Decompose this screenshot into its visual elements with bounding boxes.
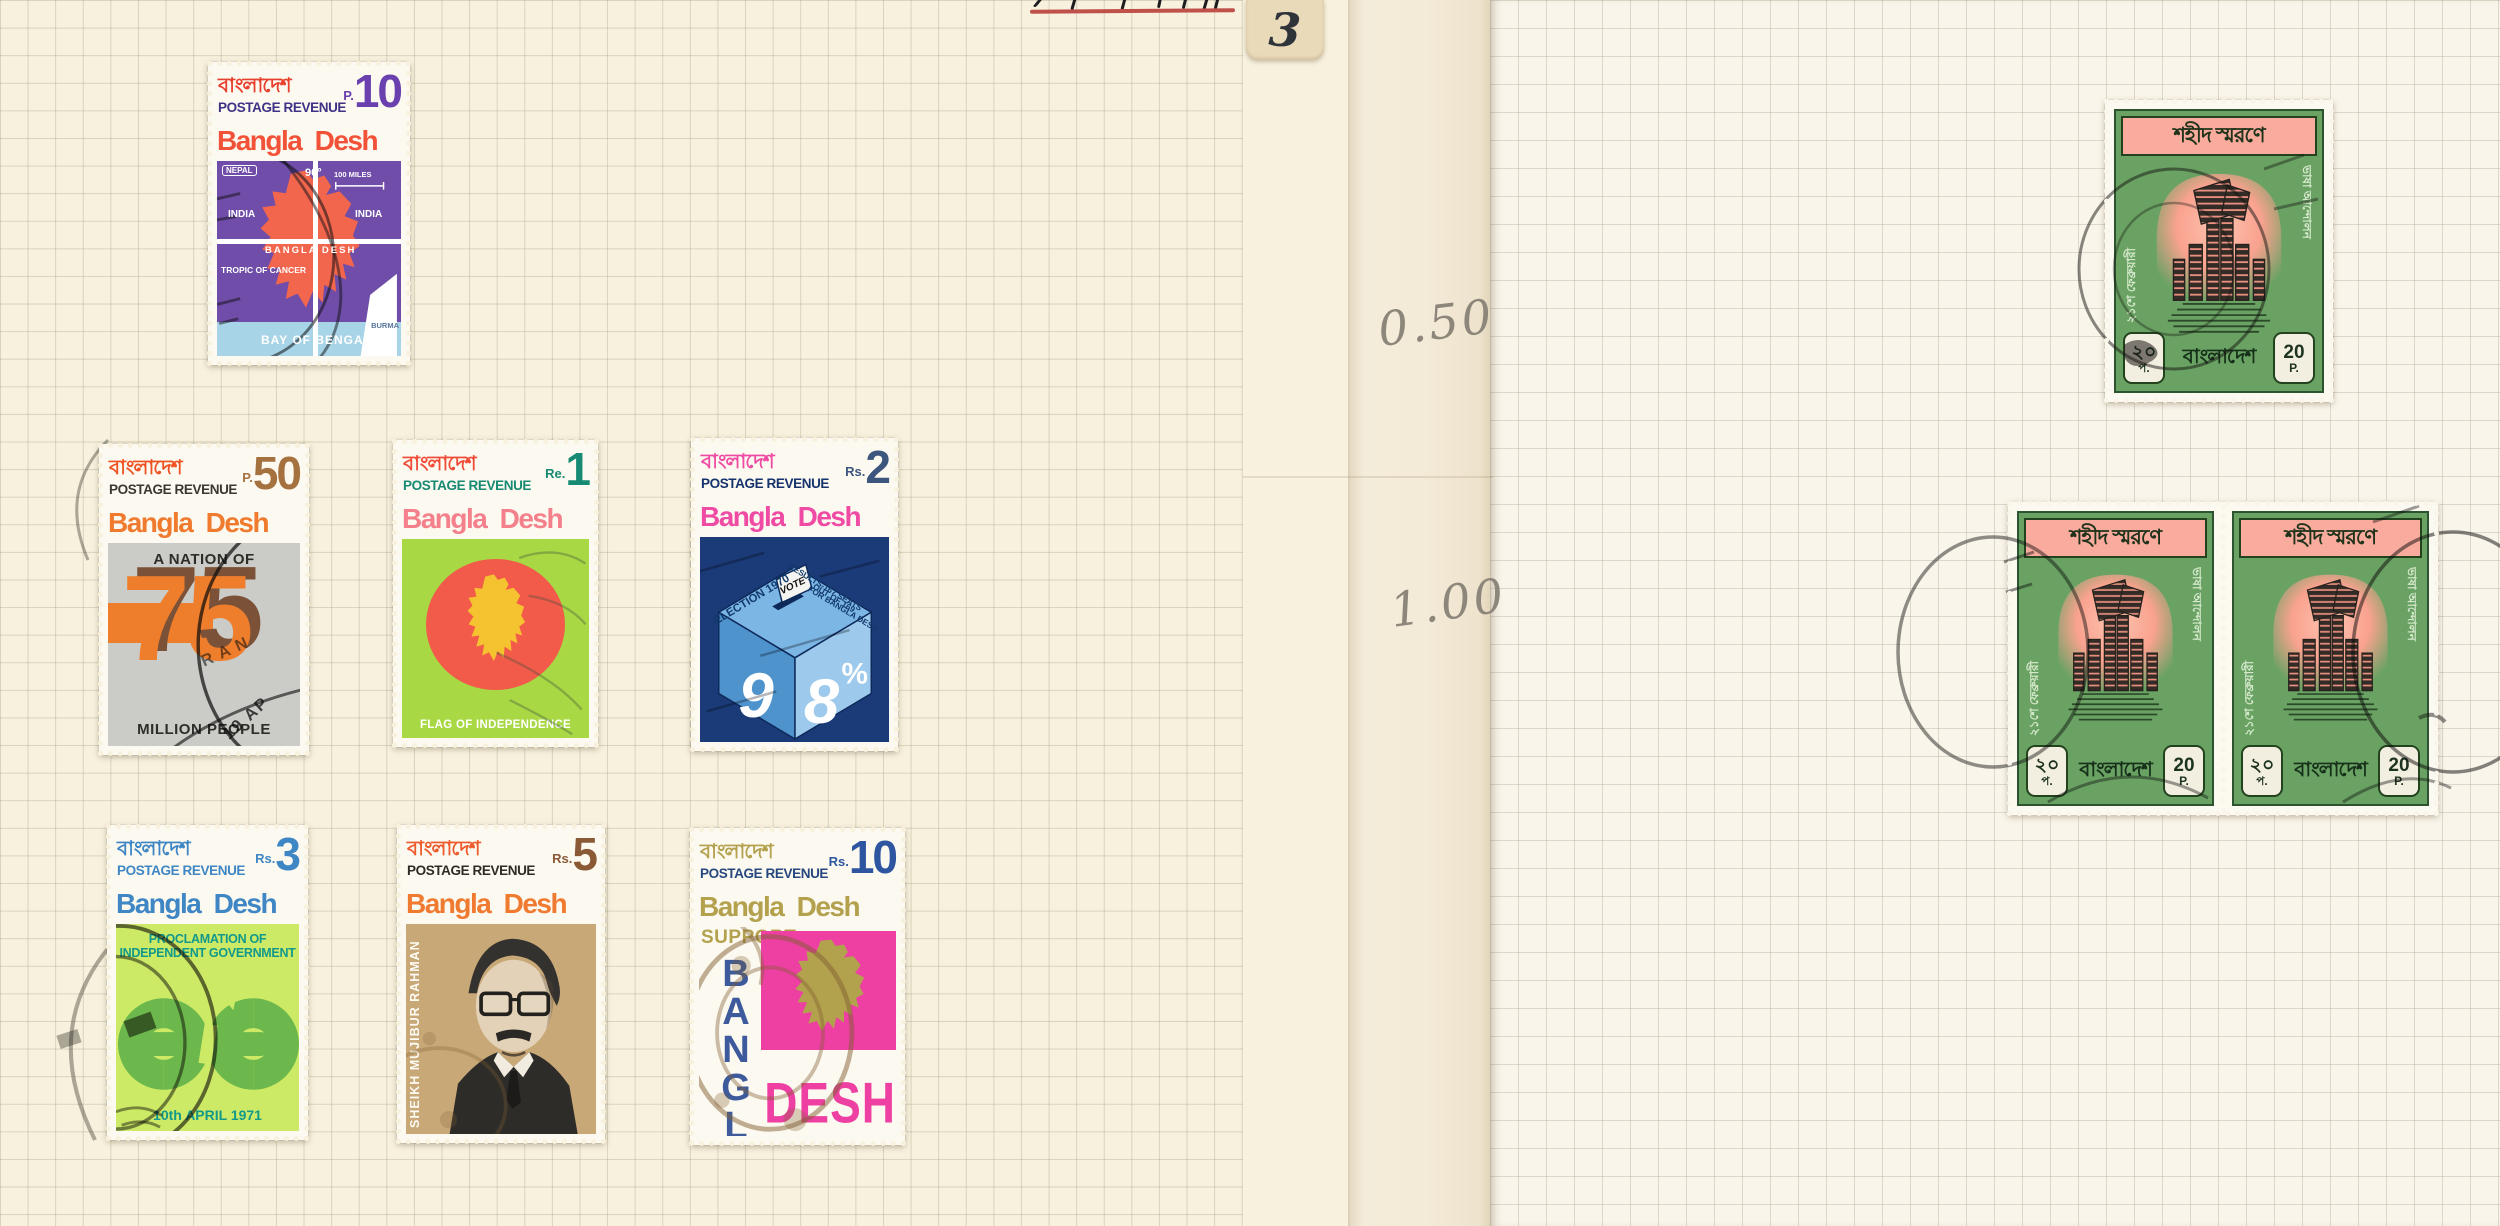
series-title: POSTAGE REVENUE bbox=[218, 100, 346, 115]
denom-prefix: Rs. bbox=[829, 854, 849, 869]
denom-value: 10 bbox=[849, 839, 896, 876]
denomination: Rs. 5 bbox=[552, 836, 596, 873]
denom-value: 5 bbox=[572, 836, 596, 873]
series-title: POSTAGE REVENUE bbox=[407, 863, 535, 878]
desh-text: DESH bbox=[764, 1069, 896, 1137]
stamp-head: বাংলাদেশ POSTAGE REVENUE Re. 1 Bangla De… bbox=[402, 449, 589, 535]
bangla-vertical-text: BANGLA bbox=[699, 953, 755, 1136]
country-name: Bangla Desh bbox=[402, 503, 562, 535]
digit-eight: 8 bbox=[804, 667, 840, 737]
stamp-10rs-support: বাংলাদেশ POSTAGE REVENUE Rs. 10 Bangla D… bbox=[690, 828, 905, 1145]
stamp-50p-nation: বাংলাদেশ POSTAGE REVENUE P. 50 Bangla De… bbox=[99, 444, 309, 755]
meridian-line bbox=[313, 161, 318, 356]
header-band: শহীদ স্মরণে bbox=[2239, 518, 2422, 558]
stamp-head: বাংলাদেশ POSTAGE REVENUE Rs. 10 Bangla D… bbox=[699, 837, 896, 923]
cut-off-ink-note bbox=[1028, 0, 1243, 18]
broken-chain-graphic bbox=[116, 970, 299, 1120]
chain-panel: PROCLAMATION OF INDEPENDENT GOVERNMENT bbox=[116, 924, 299, 1131]
denom-prefix: P. bbox=[242, 470, 253, 485]
country-name: Bangla Desh bbox=[406, 888, 566, 920]
map-panel: NEPAL 90° 100 MILES INDIA INDIA BANGLA D… bbox=[217, 161, 401, 356]
pair-left-stamp: শহীদ স্মরণে ২১শে ফেব্রুয়ারী ভাষা আন্দোল… bbox=[2008, 502, 2223, 815]
label-tropic: TROPIC OF CANCER bbox=[221, 265, 306, 275]
support-panel: SUPPORT BANGLA DESH bbox=[699, 927, 896, 1136]
side-text-right: ভাষা আন্দোলন bbox=[2297, 165, 2317, 323]
stamp-face-mount: শহীদ স্মরণে ২১শে ফেব্রুয়ারী ভাষা আন্দোল… bbox=[2114, 109, 2324, 393]
ink-stroke bbox=[1033, 0, 1042, 8]
stamp-5rs-mujib: বাংলাদেশ POSTAGE REVENUE Rs. 5 Bangla De… bbox=[397, 825, 605, 1143]
denomination: P. 10 bbox=[343, 73, 401, 110]
pink-block bbox=[761, 931, 896, 1050]
shaheed-minar-stamp-face: শহীদ স্মরণে ২১শে ফেব্রুয়ারী ভাষা আন্দোল… bbox=[2232, 511, 2429, 806]
album-scan: 3 0.50 1.00 বাংলাদেশ POSTAGE REVENUE P. … bbox=[0, 0, 2500, 1226]
bangladesh-map-graphic bbox=[764, 930, 894, 1051]
label-burma: BURMA bbox=[371, 321, 399, 330]
mujib-portrait-graphic bbox=[429, 924, 596, 1134]
denomination: Rs. 10 bbox=[829, 839, 896, 876]
denom-value: 10 bbox=[354, 73, 401, 110]
header-band: শহীদ স্মরণে bbox=[2024, 518, 2207, 558]
denom-prefix: Rs. bbox=[845, 464, 865, 479]
side-text-right: ভাষা আন্দোলন bbox=[2187, 567, 2207, 736]
stamp-3rs-proclamation: বাংলাদেশ POSTAGE REVENUE Rs. 3 Bangla De… bbox=[107, 825, 308, 1140]
denomination: Rs. 2 bbox=[845, 449, 889, 486]
red-underline bbox=[1030, 8, 1235, 13]
stamp-face-mount: শহীদ স্মরণে ২১শে ফেব্রুয়ারী ভাষা আন্দোল… bbox=[2017, 511, 2214, 806]
stamp-face-mount: শহীদ স্মরণে ২১শে ফেব্রুয়ারী ভাষা আন্দোল… bbox=[2232, 511, 2429, 806]
side-text-left: ২১শে ফেব্রুয়ারী bbox=[2024, 567, 2044, 736]
big-number: 75 bbox=[122, 551, 250, 685]
denomination: P. 50 bbox=[242, 455, 300, 492]
portrait-name-text: SHEIKH MUJIBUR RAHMAN bbox=[408, 930, 422, 1128]
denom-value: 1 bbox=[565, 451, 589, 488]
stamp-2rs-election: বাংলাদেশ POSTAGE REVENUE Rs. 2 Bangla De… bbox=[691, 438, 898, 751]
bangladesh-map-graphic bbox=[451, 571, 541, 674]
denom-prefix: Rs. bbox=[552, 851, 572, 866]
label-india-west: INDIA bbox=[228, 209, 255, 220]
stamp-10p-map: বাংলাদেশ POSTAGE REVENUE P. 10 Bangla De… bbox=[208, 62, 410, 365]
caption-bottom: MILLION PEOPLE bbox=[108, 721, 300, 738]
country-name: Bangla Desh bbox=[108, 507, 268, 539]
caption-line2: INDEPENDENT GOVERNMENT bbox=[119, 946, 295, 960]
denom-prefix: Re. bbox=[545, 466, 565, 481]
ink-stroke bbox=[1157, 0, 1162, 8]
gutter-crease bbox=[1243, 476, 1493, 478]
denom-value: 50 bbox=[253, 455, 300, 492]
label-meridian: 90° bbox=[305, 167, 322, 179]
label-nepal: NEPAL bbox=[222, 165, 257, 176]
side-text-right: ভাষা আন্দোলন bbox=[2402, 567, 2422, 736]
date-caption: 10th APRIL 1971 bbox=[116, 1107, 299, 1123]
caption: FLAG OF INDEPENDENCE bbox=[402, 719, 589, 731]
country-name: Bangla Desh bbox=[700, 501, 860, 533]
denom-value: 3 bbox=[275, 836, 299, 873]
shaheed-minar-stamp-face: শহীদ স্মরণে ২১শে ফেব্রুয়ারী ভাষা আন্দোল… bbox=[2017, 511, 2214, 806]
shaheed-minar-graphic bbox=[2258, 561, 2403, 723]
denom-prefix: Rs. bbox=[255, 851, 275, 866]
stamp-head: বাংলাদেশ POSTAGE REVENUE P. 50 Bangla De… bbox=[108, 453, 300, 539]
series-title: POSTAGE REVENUE bbox=[701, 476, 829, 491]
country-name: Bangla Desh bbox=[116, 888, 276, 920]
label-scale: 100 MILES bbox=[334, 170, 372, 179]
stamp-1re-flag: বাংলাদেশ POSTAGE REVENUE Re. 1 Bangla De… bbox=[393, 440, 598, 747]
country-bengali: বাংলাদেশ bbox=[2114, 342, 2324, 375]
side-text-left: ২১শে ফেব্রুয়ারী bbox=[2121, 165, 2141, 323]
ballot-box-graphic: VOTE ELECTION 1970 RESULTS-167 SEATS OUT… bbox=[700, 537, 889, 742]
denomination: Rs. 3 bbox=[255, 836, 299, 873]
page-number: 3 bbox=[1268, 2, 1303, 58]
denom-prefix: P. bbox=[343, 88, 354, 103]
label-bangla-desh: BANGLA DESH bbox=[265, 245, 356, 256]
stamp-20p-shaheed-minar-single: শহীদ স্মরণে ২১শে ফেব্রুয়ারী ভাষা আন্দোল… bbox=[2105, 100, 2333, 402]
stamp-head: বাংলাদেশ POSTAGE REVENUE P. 10 Bangla De… bbox=[217, 71, 401, 157]
series-title: POSTAGE REVENUE bbox=[403, 478, 531, 493]
stamp-head: বাংলাদেশ POSTAGE REVENUE Rs. 3 Bangla De… bbox=[116, 834, 299, 920]
denomination: Re. 1 bbox=[545, 451, 589, 488]
ballot-panel: VOTE ELECTION 1970 RESULTS-167 SEATS OUT… bbox=[700, 537, 889, 742]
country-bengali: বাংলাদেশ bbox=[2017, 755, 2214, 788]
shaheed-minar-stamp-face: শহীদ স্মরণে ২১শে ফেব্রুয়ারী ভাষা আন্দোল… bbox=[2114, 109, 2324, 393]
page-number-tab: 3 bbox=[1246, 0, 1324, 60]
country-name: Bangla Desh bbox=[217, 125, 377, 157]
series-title: POSTAGE REVENUE bbox=[117, 863, 245, 878]
percent-sign: % bbox=[842, 658, 868, 691]
shaheed-minar-graphic bbox=[2043, 561, 2188, 723]
stamp-20p-shaheed-minar-pair: শহীদ স্মরণে ২১শে ফেব্রুয়ারী ভাষা আন্দোল… bbox=[2008, 502, 2438, 815]
country-name: Bangla Desh bbox=[699, 891, 859, 923]
series-title: POSTAGE REVENUE bbox=[109, 482, 237, 497]
header-band: শহীদ স্মরণে bbox=[2121, 116, 2317, 156]
caption-line1: PROCLAMATION OF bbox=[149, 932, 266, 946]
side-text-left: ২১শে ফেব্রুয়ারী bbox=[2239, 567, 2259, 736]
caption: PROCLAMATION OF INDEPENDENT GOVERNMENT bbox=[116, 932, 299, 961]
country-bengali: বাংলাদেশ bbox=[2232, 755, 2429, 788]
design-panel: A NATION OF 75 MILLION PEOPLE RAN 19 AP bbox=[108, 543, 300, 746]
stamp-head: বাংলাদেশ POSTAGE REVENUE Rs. 5 Bangla De… bbox=[406, 834, 596, 920]
portrait-panel: SHEIKH MUJIBUR RAHMAN bbox=[406, 924, 596, 1134]
flag-panel: FLAG OF INDEPENDENCE bbox=[402, 539, 589, 738]
shaheed-minar-graphic bbox=[2140, 159, 2298, 336]
digit-nine: 9 bbox=[739, 661, 774, 731]
tropic-line bbox=[217, 239, 401, 244]
denom-value: 2 bbox=[865, 449, 889, 486]
label-india-east: INDIA bbox=[355, 209, 382, 220]
label-bay: BAY OF BENGAL bbox=[261, 333, 372, 347]
series-title: POSTAGE REVENUE bbox=[700, 866, 828, 881]
pair-right-stamp: শহীদ স্মরণে ২১শে ফেব্রুয়ারী ভাষা আন্দোল… bbox=[2223, 502, 2438, 815]
stamp-head: বাংলাদেশ POSTAGE REVENUE Rs. 2 Bangla De… bbox=[700, 447, 889, 533]
